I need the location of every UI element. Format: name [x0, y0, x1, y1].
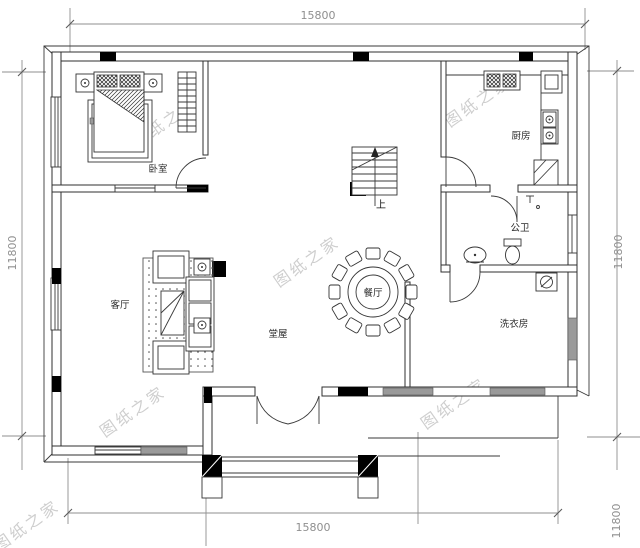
stairs-up-label: 上 — [376, 199, 386, 211]
watermark-text: 图纸之家 — [96, 382, 169, 441]
bedroom-door — [176, 158, 206, 188]
coffee-table — [161, 291, 184, 335]
kitchen-fixtures — [446, 71, 568, 185]
stairs: 上 — [352, 147, 397, 211]
window-front-laundry — [490, 388, 545, 395]
top-dimension-label: 15800 — [301, 9, 336, 22]
entrance-double-door — [257, 396, 319, 424]
right-lower-dimension-label: 11800 — [610, 504, 623, 539]
kitchen-door — [446, 157, 476, 187]
window-left-living — [51, 278, 61, 330]
nightstand — [144, 74, 162, 92]
floor-plan-canvas: 图纸之家 图纸之家 图纸之家 图纸之家 图纸之家 图纸之家 15800 1580… — [0, 0, 640, 548]
faucet — [526, 196, 540, 209]
watermark-text: 图纸之家 — [270, 232, 343, 291]
kitchen-label: 厨房 — [511, 130, 530, 142]
bedroom-label: 卧室 — [148, 163, 167, 175]
bathroom-label: 公卫 — [510, 223, 530, 234]
laundry-label: 洗衣房 — [500, 318, 529, 330]
armchair — [153, 251, 189, 283]
dimension-right: 11800 11800 — [587, 60, 640, 539]
window-front-living — [95, 447, 187, 454]
corner-counter — [534, 160, 558, 185]
dimension-top: 15800 — [66, 8, 589, 58]
floor-plan-drawing: 图纸之家 图纸之家 图纸之家 图纸之家 图纸之家 图纸之家 15800 1580… — [0, 0, 640, 548]
wardrobe — [178, 72, 196, 132]
window-right-laundry — [568, 318, 577, 360]
window-bedroom-interior — [115, 185, 155, 192]
armchair — [153, 341, 189, 374]
sofa — [186, 277, 214, 351]
dining-table: 餐厅 — [329, 248, 417, 336]
pillow — [120, 75, 140, 87]
side-table — [194, 318, 210, 333]
toilet — [504, 239, 521, 264]
main-hall-label: 堂屋 — [268, 328, 287, 340]
right-dimension-label: 11800 — [612, 235, 625, 270]
kitchen-sink — [541, 110, 558, 144]
watermark-text: 图纸之家 — [417, 374, 490, 433]
living-room-furniture — [143, 251, 214, 374]
corner-cabinet — [541, 71, 562, 93]
pillow — [97, 75, 117, 87]
bathroom-door — [491, 196, 517, 222]
dark-window-front — [338, 387, 368, 396]
washing-machine — [536, 273, 557, 291]
bedroom-furniture — [76, 72, 196, 162]
watermark-text: 图纸之家 — [0, 496, 63, 548]
porch — [202, 396, 558, 498]
dimension-left: 11800 — [2, 60, 46, 470]
bottom-dimension-label: 15800 — [296, 521, 331, 534]
laundry-door — [450, 272, 480, 302]
left-dimension-label: 11800 — [6, 236, 19, 271]
porch-column — [202, 455, 222, 498]
window-front-hall — [383, 388, 433, 395]
dining-label: 餐厅 — [363, 287, 383, 299]
window-right-bath — [568, 215, 577, 253]
window-left-bedroom — [51, 97, 61, 167]
nightstand — [76, 74, 94, 92]
side-table — [194, 259, 210, 275]
living-room-label: 客厅 — [110, 299, 130, 311]
stove — [484, 71, 520, 90]
porch-column — [358, 455, 378, 498]
bathroom-sink — [464, 247, 486, 263]
